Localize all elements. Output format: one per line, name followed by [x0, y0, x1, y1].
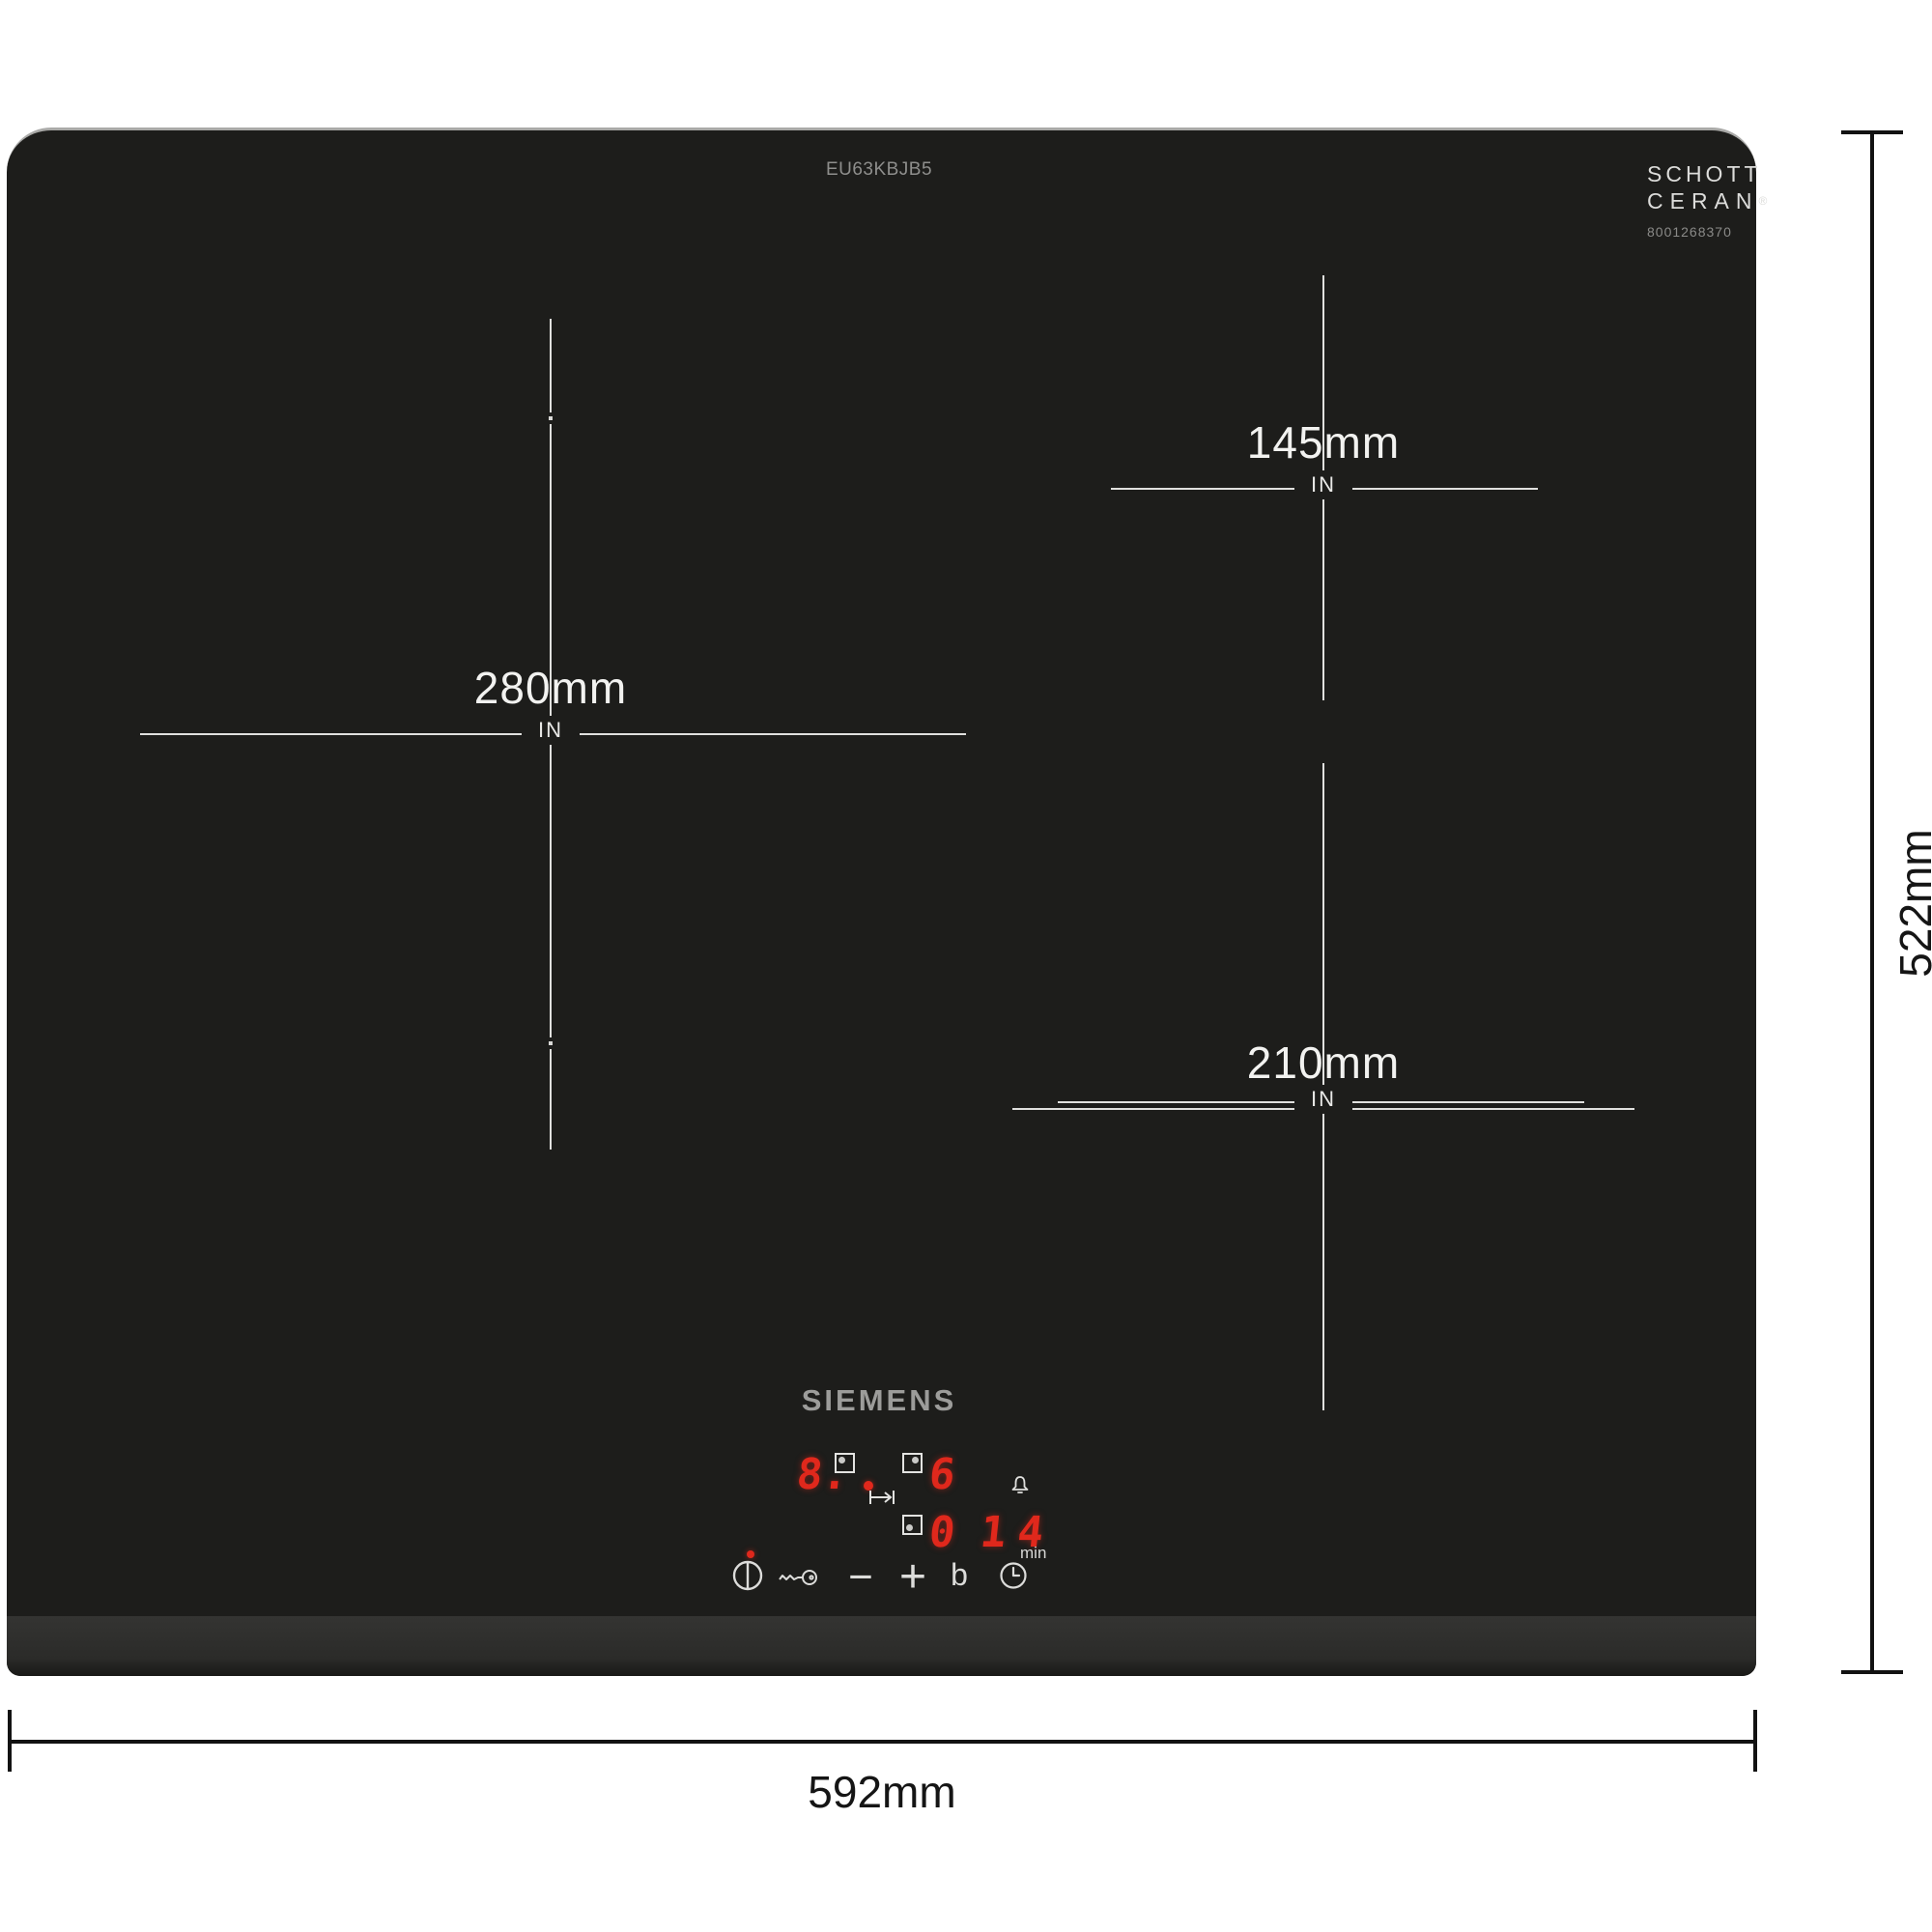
- width-dimension-right-tick: [1753, 1710, 1757, 1772]
- schott-line: SCHOTT: [1647, 161, 1767, 187]
- zone-rightback-in-label: IN: [1294, 470, 1352, 499]
- siemens-logo: SIEMENS: [734, 1383, 1024, 1418]
- depth-dimension-label: 522mm: [1887, 758, 1932, 1048]
- model-number: EU63KBJB5: [782, 159, 976, 181]
- boost-control-label: b: [945, 1557, 974, 1593]
- clock-icon: [999, 1561, 1028, 1590]
- width-dimension-line: [10, 1740, 1756, 1744]
- depth-dimension-top-tick: [1841, 130, 1903, 134]
- circle-edge-tick: [547, 1037, 554, 1049]
- key-icon: [778, 1567, 820, 1588]
- zone-left-in-label: IN: [522, 716, 580, 745]
- registered-mark: ®: [1759, 194, 1768, 208]
- ceran-line: CERAN®: [1647, 188, 1767, 214]
- serial-number: 8001268370: [1647, 224, 1767, 240]
- zone-rightfront-size-label: 210mm: [1179, 1037, 1468, 1089]
- zone3-power-display: 0: [927, 1512, 957, 1554]
- zone-rightback-size-label: 145mm: [1179, 416, 1468, 469]
- zone3-indicator-square-dot-icon: [902, 1515, 923, 1535]
- width-dimension-label: 592mm: [737, 1766, 1027, 1818]
- power-indicator-dot: [747, 1550, 754, 1558]
- depth-dimension-line: [1870, 132, 1874, 1674]
- pan-move-arrow-icon: [867, 1489, 896, 1506]
- width-dimension-left-tick: [8, 1710, 12, 1772]
- zone-rightfront-in-label: IN: [1294, 1085, 1352, 1114]
- bell-icon: [1009, 1473, 1032, 1496]
- depth-dimension-bottom-tick: [1841, 1670, 1903, 1674]
- plus-control: +: [891, 1550, 935, 1604]
- schott-ceran-logo: SCHOTT CERAN® 8001268370: [1647, 161, 1767, 240]
- zone2-power-display: 6: [927, 1454, 957, 1496]
- zone2-indicator-square-dot-icon: [902, 1453, 923, 1473]
- zone-left-size-label: 280mm: [406, 662, 696, 714]
- minus-control: −: [839, 1553, 882, 1602]
- hob-surface: EU63KBJB5 SCHOTT CERAN® 8001268370 280mm…: [7, 128, 1756, 1676]
- circle-edge-tick: [547, 412, 554, 424]
- product-image: EU63KBJB5 SCHOTT CERAN® 8001268370 280mm…: [0, 0, 1932, 1932]
- hob-front-bevel: [7, 1616, 1756, 1676]
- zone1-indicator-square-dot-icon: [835, 1453, 855, 1473]
- timer-min-label: min: [1020, 1544, 1046, 1563]
- power-icon: [731, 1559, 764, 1592]
